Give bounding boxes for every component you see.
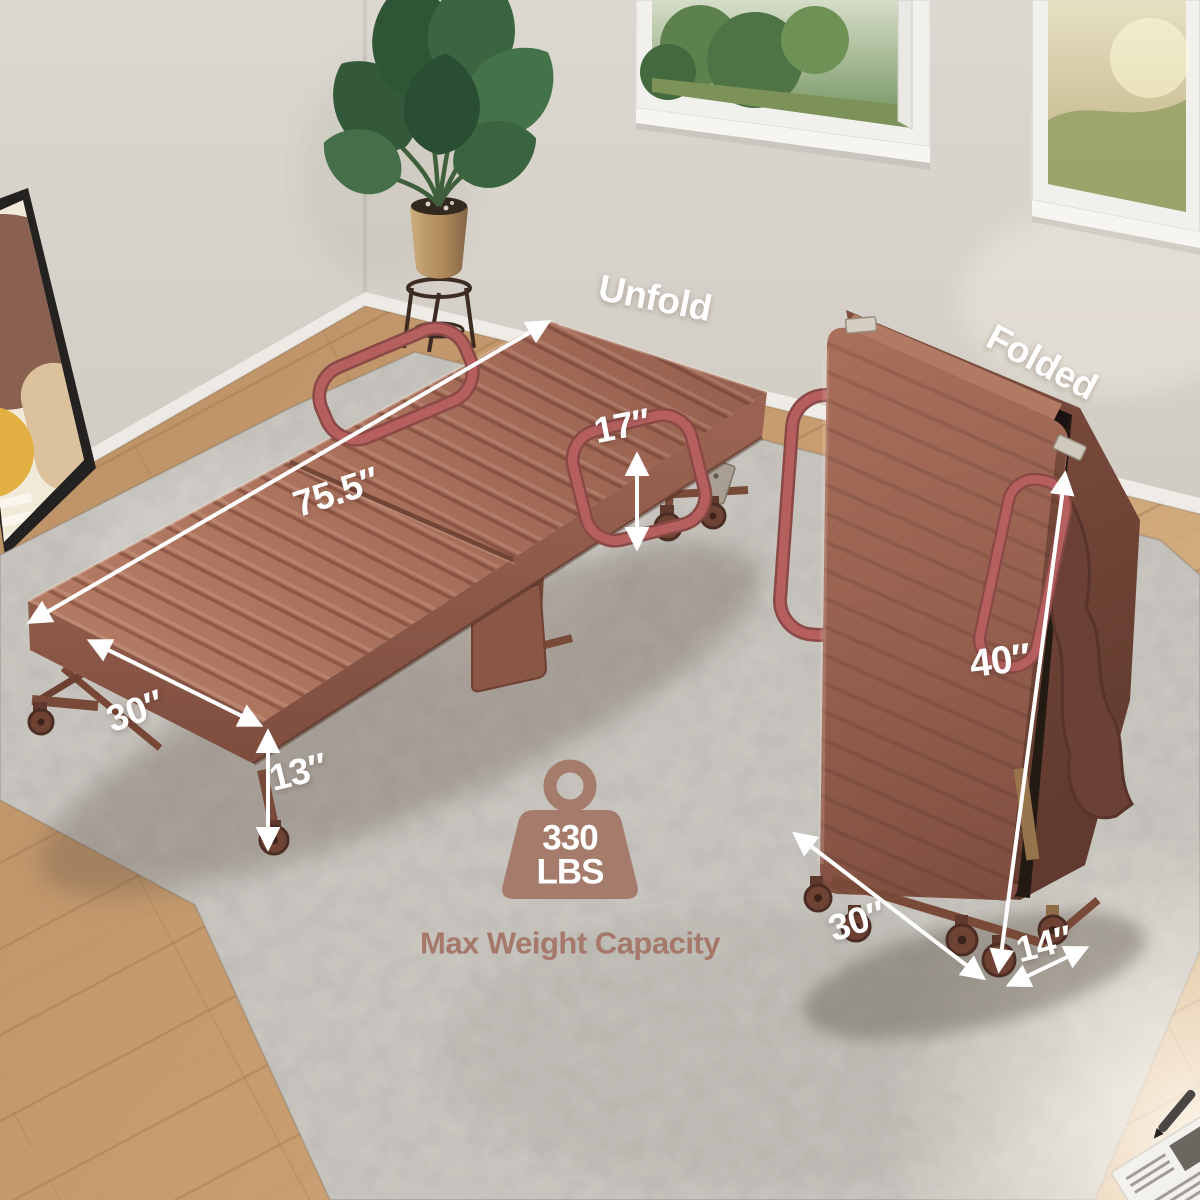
dimension-label-rail-height: 17″ bbox=[591, 403, 653, 449]
window-right bbox=[1032, 0, 1200, 255]
dimension-label-folded-height: 40″ bbox=[968, 638, 1033, 684]
plant-pot bbox=[410, 197, 468, 279]
room-illustration bbox=[0, 0, 1200, 1200]
weight-capacity-value: 330 LBS bbox=[537, 822, 604, 891]
weight-value: 330 bbox=[542, 822, 597, 856]
weight-capacity-caption: Max Weight Capacity bbox=[420, 928, 720, 959]
weight-unit: LBS bbox=[537, 856, 604, 890]
corner-bracket-left bbox=[845, 317, 876, 334]
product-scene: Unfold Folded 75.5″ 17″ 30″ 13″ 40″ 30″ … bbox=[0, 0, 1200, 1200]
